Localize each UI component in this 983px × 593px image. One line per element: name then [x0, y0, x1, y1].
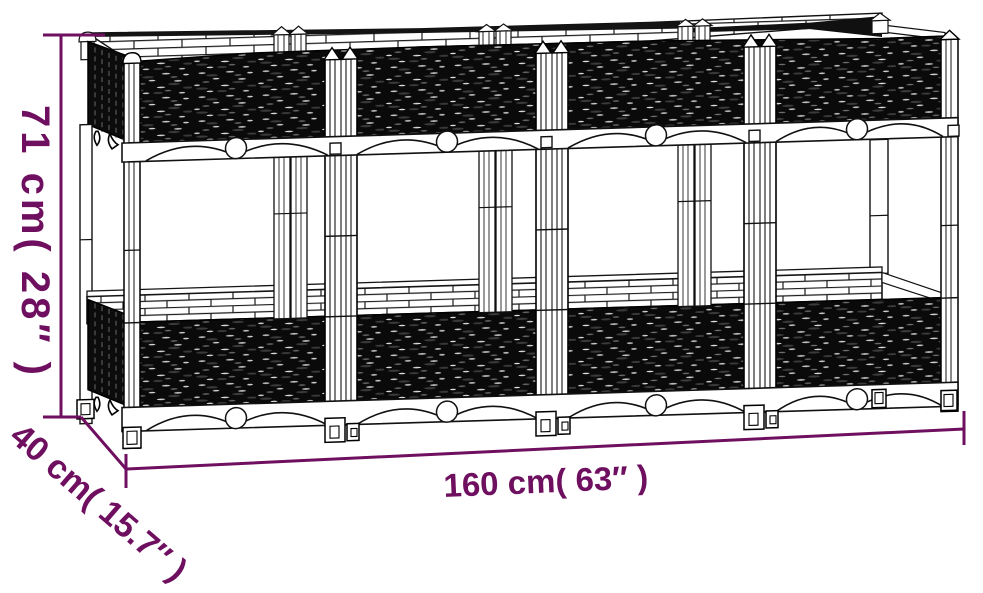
svg-text:71 cm( 28″ ): 71 cm( 28″ ) — [13, 105, 57, 379]
svg-text:160 cm( 63″ ): 160 cm( 63″ ) — [443, 458, 649, 504]
svg-text:40 cm( 15.7″ ): 40 cm( 15.7″ ) — [3, 416, 195, 589]
